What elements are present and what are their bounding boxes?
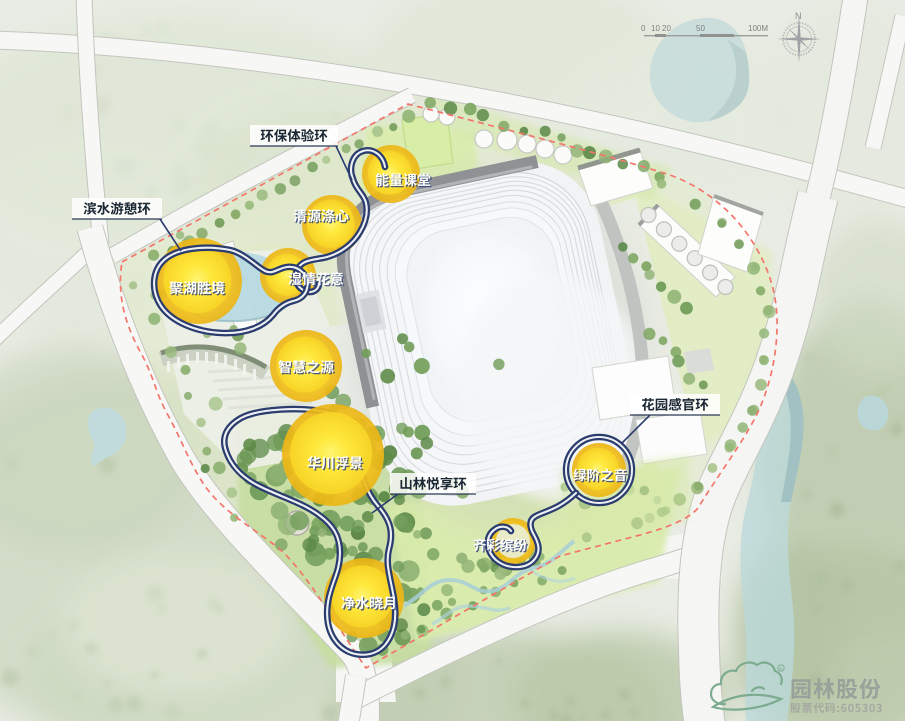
svg-text:10: 10 <box>651 24 660 33</box>
svg-text:20: 20 <box>662 24 671 33</box>
svg-text:N: N <box>795 11 802 21</box>
svg-text:R: R <box>779 667 783 673</box>
svg-text:0: 0 <box>641 24 646 33</box>
svg-text:100M: 100M <box>748 24 768 33</box>
svg-text:50: 50 <box>696 24 705 33</box>
